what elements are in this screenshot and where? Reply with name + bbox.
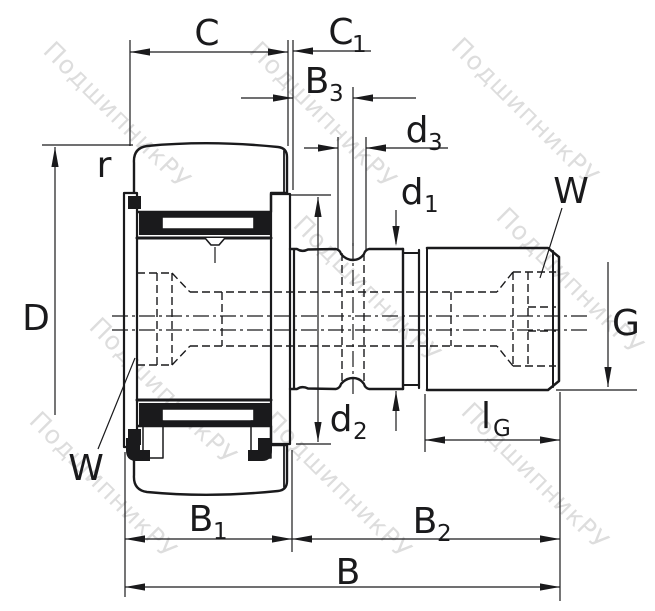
arrow-lG-right [540, 436, 560, 443]
label-d1-sub: 1 [424, 192, 439, 218]
label-d3: d [406, 110, 429, 151]
arrow-d1-bottom [392, 391, 399, 411]
watermark-text: ПодшипникРУ [446, 32, 605, 191]
label-B1: B [189, 499, 214, 540]
label-B: B [336, 552, 361, 593]
label-B2: B [413, 501, 438, 542]
shank-lower-profile [290, 378, 403, 389]
needle-roller-upper [162, 217, 254, 229]
side-washer [124, 193, 137, 447]
label-D: D [22, 298, 50, 339]
arrow-C-left [130, 48, 150, 55]
arrow-B2-right [540, 535, 560, 542]
arrow-B2-left [292, 535, 312, 542]
watermark-text: ПодшипникРУ [288, 210, 447, 369]
arrow-lG-left [425, 436, 445, 443]
arrow-B-left [125, 583, 145, 590]
hex-socket-right [451, 272, 556, 366]
needle-roller-lower [162, 409, 254, 421]
technical-drawing-page: ПодшипникРУ ПодшипникРУ ПодшипникРУ Подш… [0, 0, 655, 611]
washer-anchor-upper [128, 196, 141, 209]
label-W-top: W [553, 171, 589, 212]
label-W-bottom: W [68, 448, 104, 489]
label-B1-sub: 1 [213, 519, 228, 545]
arrow-d2-bottom [314, 422, 321, 442]
arrow-D-top [51, 147, 58, 167]
label-d1: d [401, 172, 424, 213]
label-B3-sub: 3 [329, 81, 344, 107]
watermark-text: ПодшипникРУ [38, 36, 197, 195]
watermark-text: ПодшипникРУ [244, 36, 403, 195]
label-B3: B [305, 61, 330, 102]
label-d2-sub: 2 [353, 419, 368, 445]
label-C: C [194, 13, 219, 54]
cam-follower-bearing-drawing: ПодшипникРУ ПодшипникРУ ПодшипникРУ Подш… [0, 0, 655, 611]
label-lG-sub: G [493, 416, 511, 442]
arrow-B1-right [272, 535, 292, 542]
label-G: G [612, 303, 640, 344]
label-d3-sub: 3 [428, 130, 443, 156]
arrow-B-right [540, 583, 560, 590]
arrow-B3-right [353, 94, 373, 101]
label-C1-sub: 1 [352, 32, 367, 58]
watermark-text: ПодшипникРУ [456, 397, 615, 556]
hex-socket-left [137, 273, 222, 365]
arrow-G [604, 367, 611, 387]
label-lG: l [481, 396, 491, 437]
arrow-d2-top [314, 197, 321, 217]
arrow-C1-left [293, 47, 313, 54]
label-r: r [97, 145, 112, 186]
arrow-d1-top [392, 226, 399, 246]
label-C1: C [328, 12, 353, 53]
label-d2: d [330, 399, 353, 440]
center-notch [205, 238, 225, 245]
watermark-layer: ПодшипникРУ ПодшипникРУ ПодшипникРУ Подш… [24, 32, 650, 565]
label-B2-sub: 2 [437, 521, 452, 547]
